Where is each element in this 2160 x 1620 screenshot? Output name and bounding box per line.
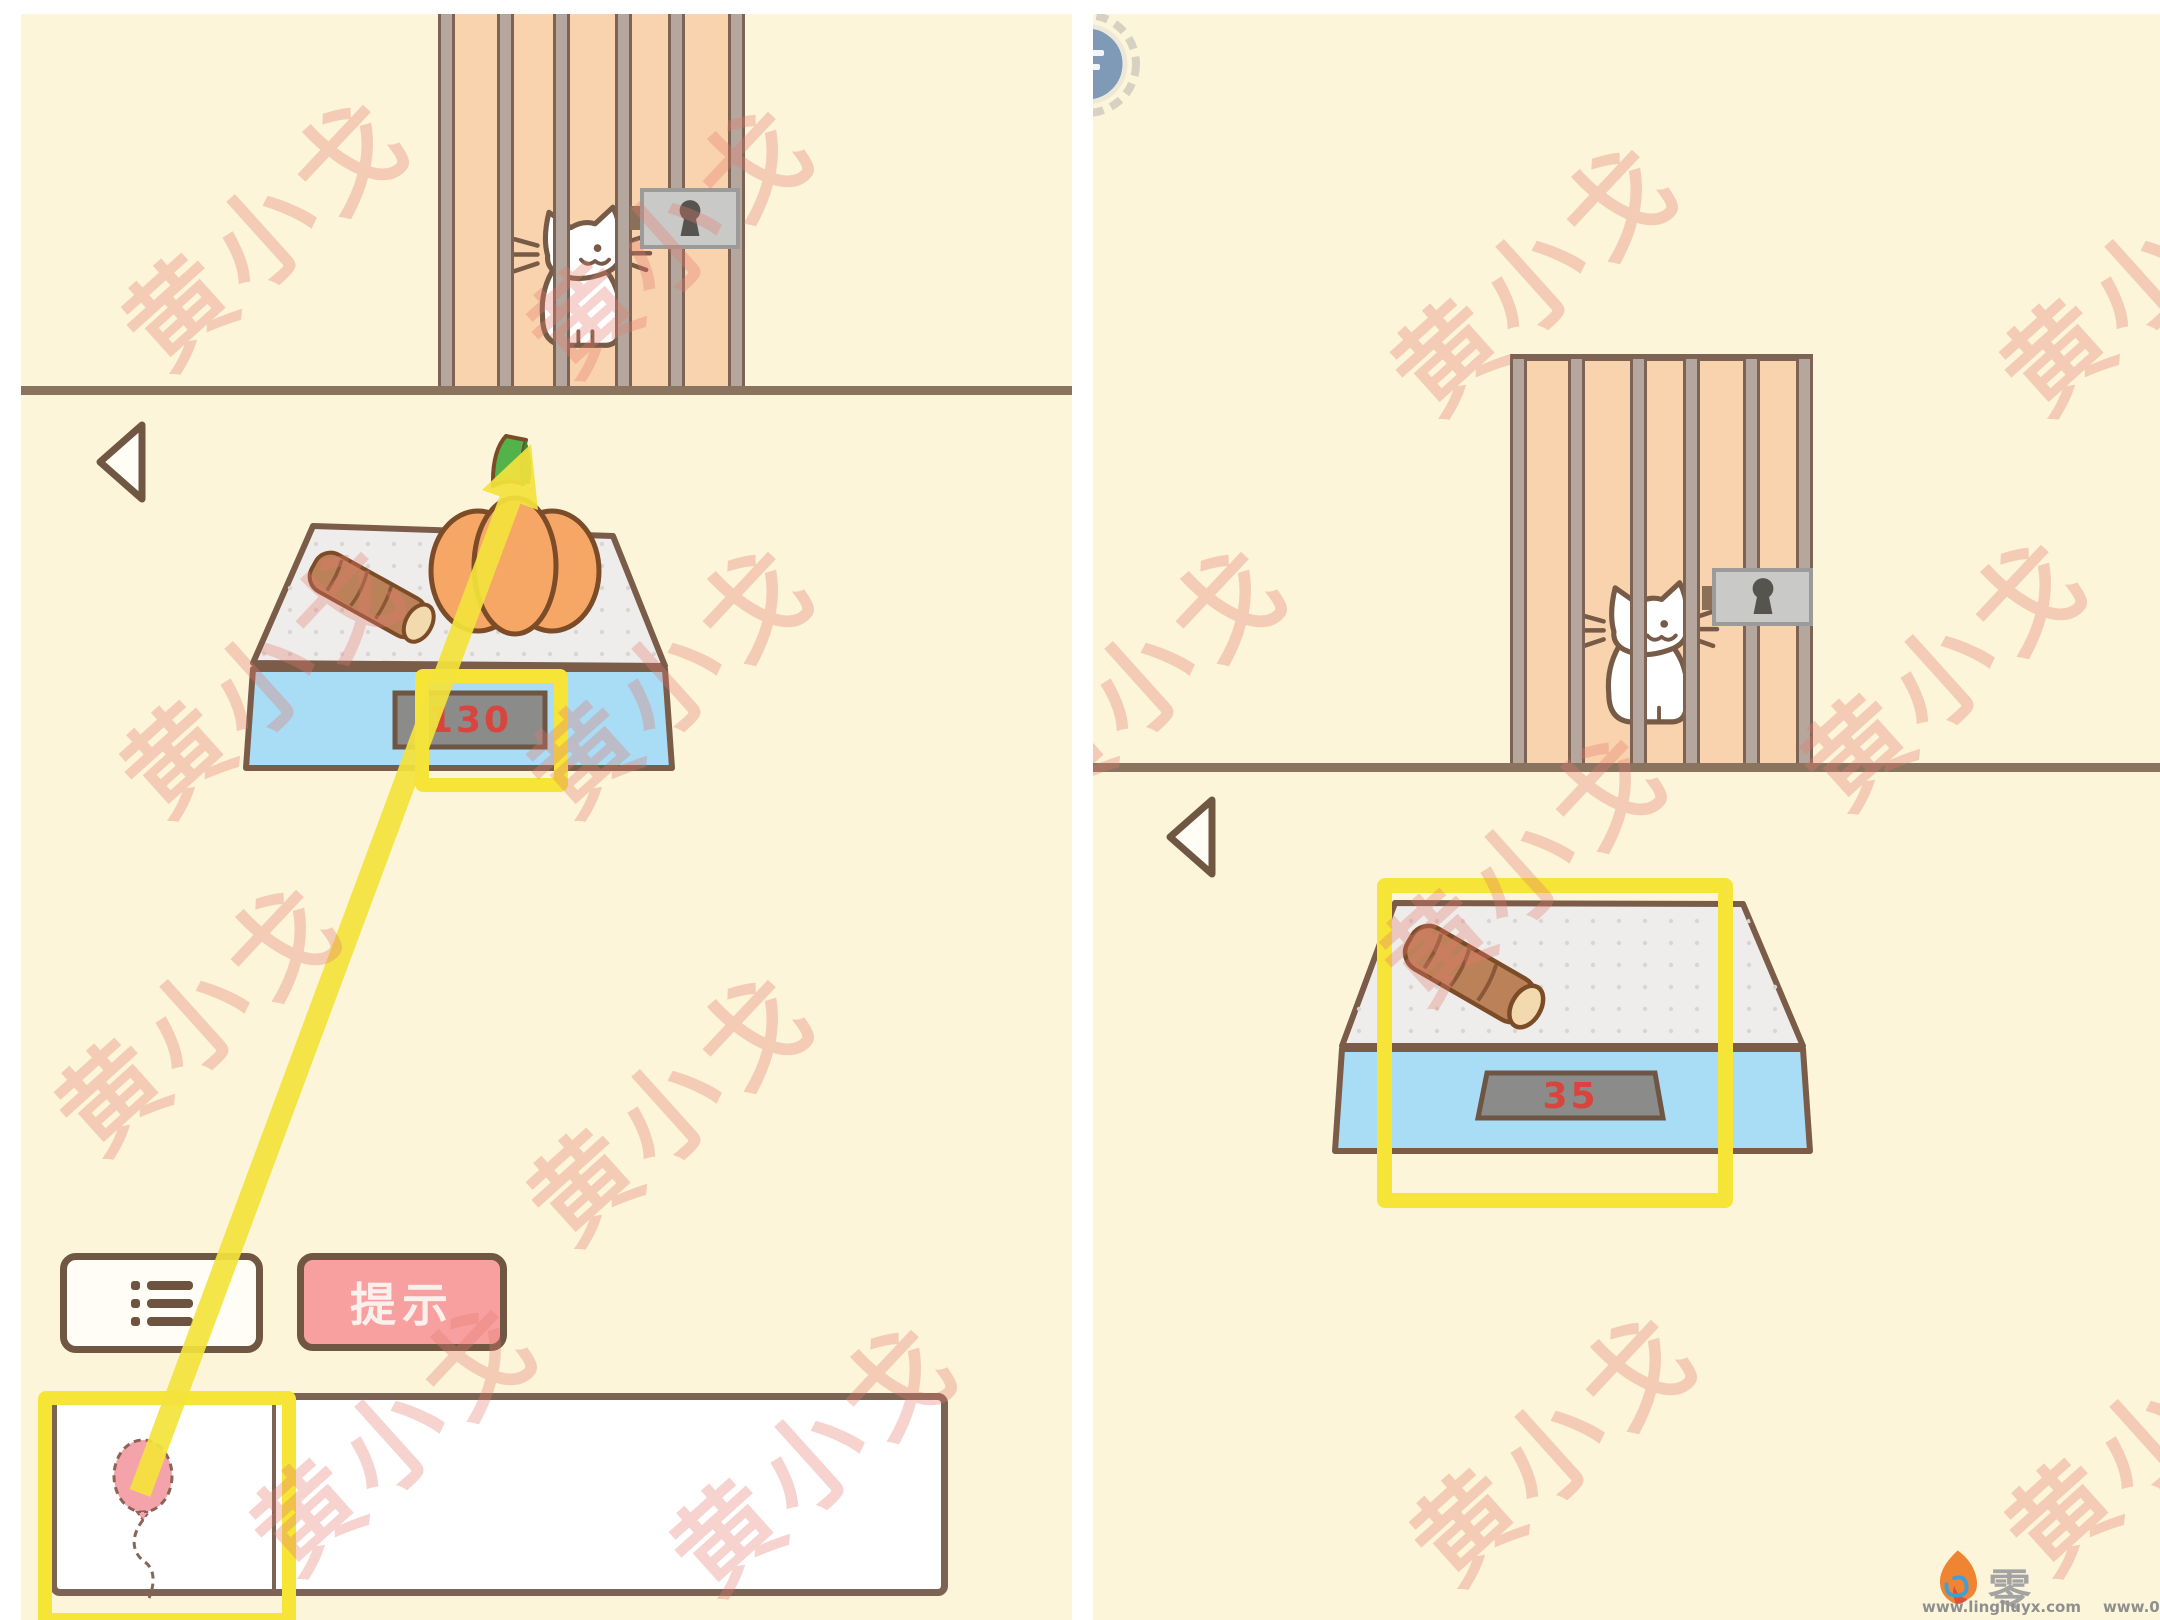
cage-bar — [615, 14, 632, 393]
back-button[interactable] — [90, 419, 150, 505]
watermark-text: 黄小戈 — [1093, 502, 1318, 843]
cage — [438, 14, 745, 393]
site-url-secondary: www.06zyx.com — [2103, 1598, 2160, 1616]
cage-bar — [1510, 359, 1527, 771]
corner-badge-icon[interactable] — [1093, 14, 1147, 124]
door-lock[interactable] — [1712, 568, 1813, 626]
cage-bar — [1743, 359, 1760, 771]
tutorial-highlight-scale — [1377, 878, 1733, 1208]
watermark-text: 黄小戈 — [1962, 100, 2160, 441]
watermark-text: 黄小戈 — [1762, 495, 2117, 836]
watermark-text: 黄小戈 — [84, 55, 439, 396]
cage-bar — [1630, 359, 1647, 771]
watermark-text: 黄小戈 — [489, 930, 844, 1271]
cage-top-beam — [1510, 354, 1813, 361]
pumpkin-stem — [493, 436, 531, 486]
site-urls: www.lingliuyx.com www.06zyx.com — [1922, 1598, 2160, 1616]
menu-list-icon — [131, 1281, 193, 1326]
keyhole-lock-icon — [673, 197, 707, 241]
cage-bar — [553, 14, 570, 393]
screenshot-root: 130 提示 — [0, 0, 2160, 1620]
cage-bar — [438, 14, 455, 393]
right-game-screen: 35 黄小戈 黄小戈 黄小戈 黄小戈 黄小戈 黄小戈 黄小戈 — [1093, 14, 2160, 1620]
menu-button[interactable] — [60, 1253, 263, 1353]
site-url-primary: www.lingliuyx.com — [1922, 1598, 2081, 1616]
back-triangle-icon — [100, 425, 142, 499]
cage — [1510, 354, 1813, 771]
cage-bar — [497, 14, 514, 393]
cage-bar — [1568, 359, 1585, 771]
keyhole-lock-icon — [1746, 575, 1780, 619]
watermark-text: 黄小戈 — [1967, 1260, 2160, 1601]
floor-line — [1093, 763, 2160, 772]
pumpkin[interactable] — [431, 498, 599, 634]
cage-bar — [1683, 359, 1700, 771]
tutorial-highlight-display — [415, 669, 568, 792]
left-game-screen: 130 提示 — [21, 14, 1072, 1620]
hint-button[interactable]: 提示 — [297, 1253, 507, 1351]
cage-bar — [1796, 359, 1813, 771]
watermark-text: 黄小戈 — [1372, 1270, 1727, 1611]
floor-line — [21, 386, 1072, 395]
back-button[interactable] — [1160, 794, 1220, 880]
tutorial-highlight-balloon — [38, 1391, 296, 1620]
hint-button-label: 提示 — [350, 1269, 454, 1335]
back-triangle-icon — [1170, 800, 1212, 874]
watermark-text: 黄小戈 — [21, 840, 373, 1181]
door-lock[interactable] — [640, 188, 740, 249]
